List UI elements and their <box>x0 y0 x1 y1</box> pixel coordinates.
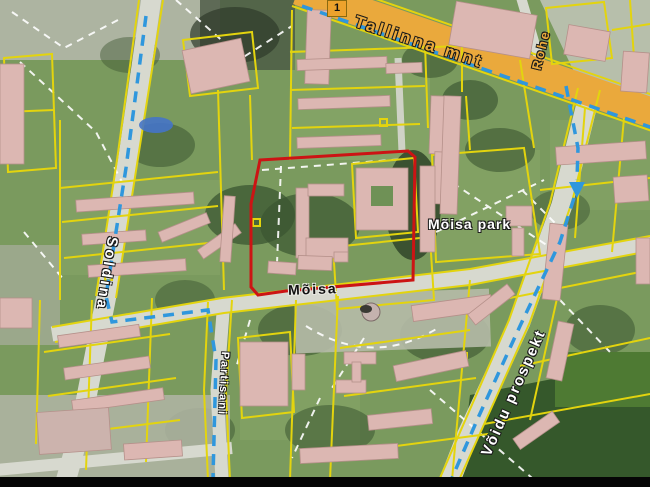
scanned-map-photo: 1 Tallinna mnt Rohe Soldina Mõisa Mõisa … <box>0 0 650 487</box>
aerial-map <box>0 0 650 477</box>
pond <box>139 117 173 133</box>
route-number-badge: 1 <box>327 0 347 17</box>
photo-black-bar <box>0 477 650 487</box>
aerial-map-canvas: 1 Tallinna mnt Rohe Soldina Mõisa Mõisa … <box>0 0 650 477</box>
